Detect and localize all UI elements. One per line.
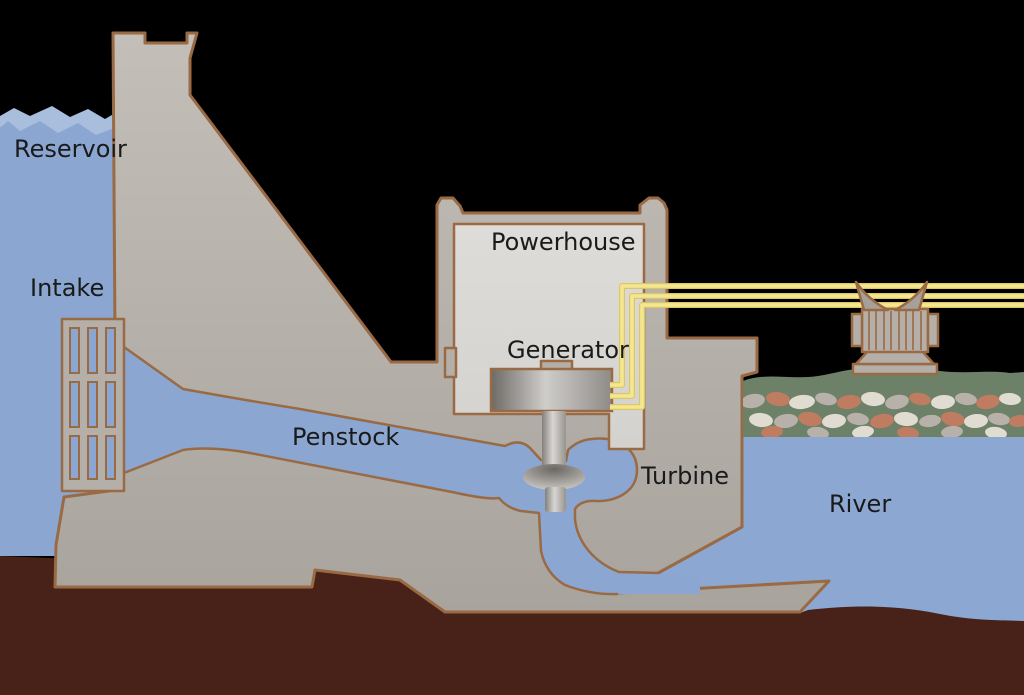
tower-flange-right: [928, 314, 938, 346]
label-river: River: [829, 490, 891, 518]
tower-body: [862, 309, 928, 352]
label-generator: Generator: [507, 336, 629, 364]
grate-slot: [106, 382, 115, 427]
grate-slot: [70, 328, 79, 373]
tower-base: [853, 364, 937, 374]
intake-grate: [62, 319, 124, 491]
river-bank: [740, 369, 1024, 440]
hydroelectric-dam-diagram: Reservoir Intake Powerhouse Generator Pe…: [0, 0, 1024, 695]
label-reservoir: Reservoir: [14, 135, 127, 163]
generator-body: [491, 369, 612, 411]
turbine-runner: [523, 464, 585, 490]
diagram-canvas: Reservoir Intake Powerhouse Generator Pe…: [0, 0, 1024, 695]
tower-flange-left: [852, 314, 862, 346]
grate-slots: [70, 328, 115, 479]
label-turbine: Turbine: [640, 462, 729, 490]
generator-shaft: [542, 411, 566, 468]
grate-slot: [88, 328, 97, 373]
grate-slot: [106, 328, 115, 373]
grate-slot: [106, 436, 115, 479]
grate-slot: [88, 436, 97, 479]
grate-slot: [70, 382, 79, 427]
grate-slot: [70, 436, 79, 479]
label-powerhouse: Powerhouse: [491, 228, 636, 256]
turbine-stub: [545, 487, 566, 512]
powerhouse-door: [445, 348, 456, 377]
label-penstock: Penstock: [292, 423, 399, 451]
grate-slot: [88, 382, 97, 427]
label-intake: Intake: [30, 274, 104, 302]
